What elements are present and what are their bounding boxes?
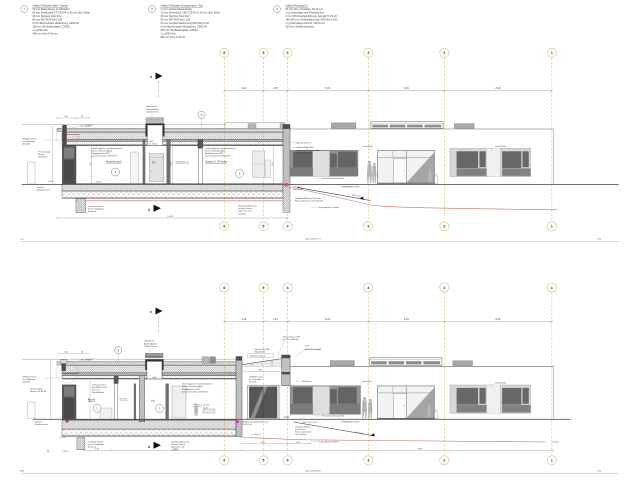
svg-text:unsprüngliches Gelände: unsprüngliches Gelände	[319, 206, 339, 209]
svg-text:Unterhangdecke schallabsorbier: Unterhangdecke schallabsorbierend	[182, 383, 212, 386]
svg-text:40: 40	[81, 116, 83, 118]
svg-text:6: 6	[223, 51, 225, 55]
svg-text:Kinderbereich: Kinderbereich	[106, 161, 122, 164]
svg-text:mit Schotter,: mit Schotter,	[295, 428, 306, 431]
svg-text:14,49: 14,49	[167, 216, 173, 218]
svg-text:verdichtet: verdichtet	[238, 212, 247, 215]
svg-text:Gerät-Plate: Gerät-Plate	[363, 145, 373, 148]
svg-text:30-b-025: 30-b-025	[23, 144, 31, 146]
svg-text:220 mm Stahlbetondecke: 220 mm Stahlbetondecke	[286, 26, 315, 29]
svg-text:Stb-Bänder: Stb-Bänder	[302, 380, 312, 383]
svg-text:Austritte fir 30 cm: Austritte fir 30 cm	[297, 141, 312, 144]
svg-text:Schachtelung Plus 10/19/25 B: Schachtelung Plus 10/19/25 B	[182, 390, 208, 393]
svg-text:6: 6	[223, 286, 225, 290]
svg-text:Gerät-Plate: Gerät-Plate	[362, 380, 372, 383]
svg-text:(Glasbausteine): (Glasbausteine)	[34, 423, 48, 426]
svg-text:Flur: Flur	[151, 399, 155, 402]
svg-text:Raffstore-Panzer: Raffstore-Panzer	[297, 152, 312, 155]
svg-text:400 mm Kies 0-45 mm: 400 mm Kies 0-45 mm	[33, 33, 58, 36]
svg-text:Oberlicht mit: Oberlicht mit	[144, 340, 155, 343]
svg-text:Pfostenanlage: Pfostenanlage	[38, 151, 50, 154]
svg-text:(Glasbausteine): (Glasbausteine)	[37, 188, 51, 191]
svg-text:Fensterbank durchgehend: Fensterbank durchgehend	[322, 177, 344, 180]
svg-text:Sanitär 3: Sanitär 3	[193, 403, 203, 406]
svg-text:Schachtelung Plus 10/19/25 B: Schachtelung Plus 10/19/25 B	[205, 154, 231, 157]
svg-text:5: 5	[263, 286, 265, 290]
svg-text:29,87: 29,87	[418, 448, 423, 450]
svg-text:1: 1	[551, 459, 553, 463]
svg-text:Aufbau Fußboden Bad / Sanitär: Aufbau Fußboden Bad / Sanitär	[33, 5, 68, 8]
svg-text:1,20: 1,20	[95, 448, 99, 450]
svg-text:Klau-Stb-Ub: Klau-Stb-Ub	[255, 350, 265, 353]
svg-text:400 mm Kies 0-45 mm: 400 mm Kies 0-45 mm	[161, 36, 186, 39]
svg-text:Schotter, Einbau: Schotter, Einbau	[238, 207, 252, 210]
svg-text:Gerüst-Platte: Gerüst-Platte	[495, 381, 506, 384]
svg-text:1: 1	[551, 51, 553, 55]
svg-text:Fensterbank durchgehend: Fensterbank durchgehend	[322, 415, 344, 418]
svg-text:6,37⁵: 6,37⁵	[325, 86, 331, 90]
svg-text:WSV8-01 St-Ub: WSV8-01 St-Ub	[23, 376, 36, 379]
svg-text:84*: 84*	[47, 451, 50, 453]
svg-text:+0,05: +0,05	[152, 377, 157, 379]
svg-text:3,12: 3,12	[241, 318, 246, 321]
svg-text:Außenrollladen: Außenrollladen	[144, 342, 157, 345]
svg-text:3: 3	[367, 51, 369, 55]
svg-text:3,12: 3,12	[241, 87, 246, 90]
svg-text:dn 8 mm, Geländer: dn 8 mm, Geländer	[283, 338, 300, 341]
svg-text:WSV8-01 St-Ub: WSV8-01 St-Ub	[23, 138, 36, 141]
svg-text:D-38: D-38	[305, 346, 309, 348]
svg-text:2,76: 2,76	[171, 162, 173, 166]
svg-text:1200x1200 mm: 1200x1200 mm	[144, 346, 157, 348]
svg-text:und auf tragfähigen: und auf tragfähigen	[88, 208, 104, 211]
svg-text:unsprüngliches Gelände: unsprüngliches Gelände	[319, 440, 339, 443]
svg-text:4: 4	[287, 51, 289, 55]
svg-text:30-b-025: 30-b-025	[23, 382, 31, 384]
svg-text:und auf tragfähigen: und auf tragfähigen	[88, 443, 104, 446]
svg-text:1,20: 1,20	[64, 116, 68, 118]
svg-text:sh. Detail: sh. Detail	[149, 142, 157, 145]
svg-text:8,49: 8,49	[496, 318, 501, 321]
svg-text:Gründung frostfrei: Gründung frostfrei	[88, 441, 104, 444]
svg-text:1,20 10: 1,20 10	[62, 451, 68, 453]
svg-text:4: 4	[287, 225, 289, 229]
svg-text:trobetrieb, Revision außen: trobetrieb, Revision außen	[297, 149, 322, 152]
svg-text:6: 6	[223, 459, 225, 463]
svg-text:5: 5	[263, 51, 265, 55]
svg-text:Geländeauffüllung mit: Geländeauffüllung mit	[238, 205, 257, 208]
svg-text:1,90: 1,90	[296, 442, 300, 444]
svg-text:6,01: 6,01	[404, 87, 409, 90]
svg-text:sh. Detail 1: sh. Detail 1	[251, 433, 260, 436]
svg-text:Gruppe 2: 25 Kinder: Gruppe 2: 25 Kinder	[205, 161, 228, 164]
svg-text:530 NF 06: 530 NF 06	[38, 157, 47, 159]
svg-text:Vor./Put.: Vor./Put.	[120, 398, 129, 401]
svg-text:Garderobe 2+: Garderobe 2+	[176, 160, 190, 163]
svg-text:Aufbau Fußboden Gruppenraum /: Aufbau Fußboden Gruppenraum / Flur	[161, 5, 204, 8]
svg-text:2: 2	[443, 459, 445, 463]
svg-text:Torwand: Torwand	[37, 186, 44, 189]
svg-text:und verdichtet: und verdichtet	[295, 433, 307, 436]
svg-text:aus Stahlzarge: aus Stahlzarge	[23, 140, 36, 143]
svg-text:B-B: B-B	[20, 471, 24, 473]
svg-text:Sperren aus WAF: Sperren aus WAF	[255, 348, 271, 351]
svg-text:6,01: 6,01	[404, 318, 409, 321]
svg-text:aus Elementbr.: aus Elementbr.	[249, 378, 262, 381]
svg-text:Klasse Thermatex Alpha: Klasse Thermatex Alpha	[182, 385, 203, 388]
svg-text:7,49: 7,49	[173, 448, 177, 450]
svg-text:1,87: 1,87	[273, 318, 278, 321]
svg-text:Wand-Aufläge: Wand-Aufläge	[92, 391, 104, 394]
svg-text:±0,00: ±0,00	[96, 182, 102, 184]
svg-text:6: 6	[223, 225, 225, 229]
svg-text:Detail 8 Leinhof: Detail 8 Leinhof	[305, 348, 322, 351]
svg-text:Geländeauffüllung mit Schotter: Geländeauffüllung mit Schotter,	[295, 197, 322, 200]
svg-text:4,00: 4,00	[261, 442, 265, 444]
svg-text:4: 4	[287, 459, 289, 463]
svg-text:Gerüst-Platte: Gerüst-Platte	[495, 145, 506, 148]
svg-text:Pfostenanlage: Pfostenanlage	[30, 388, 42, 391]
svg-text:1: 1	[551, 286, 553, 290]
svg-text:Baugrund: Baugrund	[88, 210, 96, 213]
svg-text:Torwand: Torwand	[34, 420, 41, 423]
svg-text:Küche: Küche	[88, 399, 96, 402]
svg-text:4: 4	[287, 286, 289, 290]
svg-text:5: 5	[263, 225, 265, 229]
svg-text:sh. Detail 7: sh. Detail 7	[81, 124, 94, 127]
svg-text:3: 3	[367, 459, 369, 463]
svg-text:2: 2	[443, 225, 445, 229]
svg-text:C-C: C-C	[20, 239, 24, 241]
svg-text:TERRASSE / HOF: TERRASSE / HOF	[341, 185, 360, 188]
svg-text:Einbau lagenweise und verdicht: Einbau lagenweise und verdichtet	[295, 199, 324, 202]
svg-text:Schotter, Einbau: Schotter, Einbau	[171, 443, 185, 446]
svg-text:2: 2	[443, 51, 445, 55]
svg-text:Schachtelung Plus 10/19/25 B: Schachtelung Plus 10/19/25 B	[92, 154, 118, 157]
svg-text:271,00: 271,00	[60, 437, 66, 439]
svg-text:Oberlicht mit: Oberlicht mit	[146, 105, 157, 108]
svg-text:4,02: 4,02	[284, 416, 289, 419]
svg-text:bit 53,8 um: bit 53,8 um	[243, 423, 253, 426]
svg-text:1,87: 1,87	[273, 87, 278, 90]
svg-text:3,16: 3,16	[272, 162, 274, 166]
svg-text:Außenrollladen Elek-: Außenrollladen Elek-	[297, 146, 315, 149]
svg-text:5: 5	[263, 459, 265, 463]
svg-text:fl+,20: fl+,20	[203, 407, 208, 409]
svg-text:Außenrollladen: Außenrollladen	[146, 108, 159, 111]
svg-text:Geländeauffüllung mit: Geländeauffüllung mit	[171, 441, 190, 444]
svg-text:8,49: 8,49	[496, 87, 501, 90]
svg-text:TERRASSE / HOF: TERRASSE / HOF	[341, 421, 360, 424]
svg-text:2: 2	[443, 286, 445, 290]
svg-text:Klassen 530 NF 06: Klassen 530 NF 06	[30, 391, 46, 393]
svg-text:Querschnitt B-B: Querschnitt B-B	[305, 470, 321, 473]
svg-text:Flur: Flur	[152, 160, 156, 163]
svg-text:3,34: 3,34	[259, 370, 263, 372]
svg-text:3: 3	[367, 225, 369, 229]
svg-text:1,20: 1,20	[64, 352, 68, 354]
svg-text:2,76: 2,76	[90, 162, 92, 166]
svg-text:6,37⁵: 6,37⁵	[325, 317, 331, 321]
svg-text:Querschnitt C-C: Querschnitt C-C	[305, 238, 321, 241]
svg-text:St.-b-Eth: St.-b-Eth	[249, 381, 256, 384]
svg-text:sh. Detail 7: sh. Detail 7	[81, 358, 94, 361]
svg-text:aus Stahlzarge: aus Stahlzarge	[23, 378, 36, 381]
svg-text:Vergussanguss VSG: Vergussanguss VSG	[283, 336, 301, 339]
svg-text:40: 40	[81, 352, 83, 354]
svg-text:1: 1	[551, 225, 553, 229]
svg-text:Randgitterkante 6*/67: Randgitterkante 6*/67	[182, 388, 200, 391]
svg-text:Gründung frostfrei: Gründung frostfrei	[88, 205, 104, 208]
svg-text:1200x1200 mm: 1200x1200 mm	[146, 112, 159, 114]
svg-text:Aufbau Flachdach 3: Aufbau Flachdach 3	[286, 5, 309, 8]
svg-text:+171,50: +171,50	[552, 442, 559, 444]
svg-text:3: 3	[367, 286, 369, 290]
svg-text:Oberkant Leitwand: Oberkant Leitwand	[249, 355, 265, 358]
